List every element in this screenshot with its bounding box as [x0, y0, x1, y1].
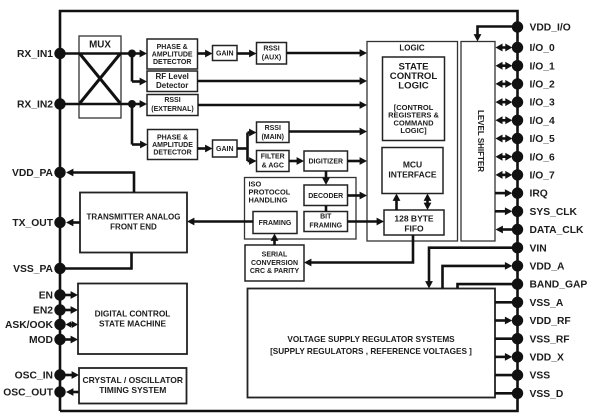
svg-text:OSC_OUT: OSC_OUT: [3, 388, 53, 399]
svg-text:INTERFACE: INTERFACE: [388, 170, 437, 180]
svg-text:DETECTOR: DETECTOR: [153, 150, 191, 157]
svg-text:I/O_6: I/O_6: [530, 152, 555, 163]
svg-text:[SUPPLY REGULATORS , REFERENC: [SUPPLY REGULATORS , REFERENCE VOLTAGES …: [270, 347, 472, 356]
svg-text:IRQ: IRQ: [530, 189, 548, 200]
svg-text:BIT: BIT: [320, 214, 332, 221]
svg-text:DECODER: DECODER: [308, 193, 343, 200]
svg-text:OSC_IN: OSC_IN: [15, 371, 53, 382]
svg-text:(AUX): (AUX): [262, 55, 281, 62]
svg-text:DETECTOR: DETECTOR: [153, 59, 191, 66]
svg-text:AMPLITUDE: AMPLITUDE: [152, 142, 193, 149]
svg-text:FRAMING: FRAMING: [309, 223, 342, 230]
svg-text:CRYSTAL / OSCILLATOR: CRYSTAL / OSCILLATOR: [82, 375, 183, 385]
svg-text:EN: EN: [39, 291, 53, 302]
svg-text:I/O_0: I/O_0: [530, 43, 555, 54]
svg-text:RSSI: RSSI: [164, 97, 180, 104]
svg-text:& AGC: & AGC: [262, 163, 284, 170]
svg-text:Detector: Detector: [156, 81, 188, 90]
svg-text:LOGIC: LOGIC: [399, 44, 425, 53]
svg-text:RX_IN1: RX_IN1: [17, 49, 53, 60]
svg-text:RX_IN2: RX_IN2: [17, 100, 53, 111]
svg-text:GAIN: GAIN: [216, 146, 234, 153]
svg-text:VSS_A: VSS_A: [530, 298, 564, 309]
svg-text:EN2: EN2: [33, 306, 53, 317]
svg-text:(MAIN): (MAIN): [261, 134, 284, 141]
svg-text:VDD_A: VDD_A: [530, 262, 565, 273]
svg-text:I/O_3: I/O_3: [530, 98, 555, 109]
svg-text:VOLTAGE SUPPLY REGULATOR SYSTE: VOLTAGE SUPPLY REGULATOR SYSTEMS: [287, 335, 455, 344]
svg-text:SERIAL: SERIAL: [262, 252, 288, 259]
svg-text:TX_OUT: TX_OUT: [12, 218, 53, 229]
svg-text:LOGIC: LOGIC: [398, 81, 428, 92]
svg-text:CONVERSION: CONVERSION: [251, 260, 298, 267]
svg-text:VDD_I/O: VDD_I/O: [530, 23, 571, 34]
svg-text:MOD: MOD: [29, 335, 53, 346]
svg-text:TIMING SYSTEM: TIMING SYSTEM: [99, 385, 166, 395]
svg-text:LOGIC]: LOGIC]: [400, 126, 427, 135]
svg-text:MCU: MCU: [403, 160, 422, 170]
svg-text:RSSI: RSSI: [263, 46, 279, 53]
svg-text:STATE MACHINE: STATE MACHINE: [99, 319, 166, 329]
svg-text:GAIN: GAIN: [216, 51, 234, 58]
svg-text:VDD_PA: VDD_PA: [12, 168, 54, 179]
svg-text:RSSI: RSSI: [265, 125, 281, 132]
svg-text:FILTER: FILTER: [261, 154, 285, 161]
svg-text:DIGITIZER: DIGITIZER: [308, 159, 343, 166]
svg-text:HANDLING: HANDLING: [249, 196, 288, 205]
svg-text:I/O_2: I/O_2: [530, 80, 555, 91]
svg-text:AMPLITUDE: AMPLITUDE: [152, 52, 193, 59]
svg-text:LEVEL SHIFTER: LEVEL SHIFTER: [476, 110, 485, 172]
svg-text:I/O_5: I/O_5: [530, 134, 555, 145]
svg-text:(EXTERNAL): (EXTERNAL): [151, 106, 193, 113]
svg-text:RF Level: RF Level: [156, 72, 189, 81]
svg-text:128 BYTE: 128 BYTE: [394, 213, 434, 223]
svg-text:I/O_7: I/O_7: [530, 171, 555, 182]
svg-text:VIN: VIN: [530, 243, 547, 254]
svg-text:VDD_X: VDD_X: [530, 353, 564, 364]
svg-text:SYS_CLK: SYS_CLK: [530, 207, 578, 218]
svg-text:I/O_4: I/O_4: [530, 116, 555, 127]
svg-text:VSS_PA: VSS_PA: [13, 264, 53, 275]
svg-text:VSS: VSS: [530, 371, 551, 382]
svg-text:BAND_GAP: BAND_GAP: [530, 280, 588, 291]
svg-text:FIFO: FIFO: [404, 223, 424, 233]
svg-text:I/O_1: I/O_1: [530, 61, 555, 72]
svg-text:VSS_RF: VSS_RF: [530, 334, 570, 345]
svg-text:VDD_RF: VDD_RF: [530, 316, 571, 327]
svg-text:DATA_CLK: DATA_CLK: [530, 225, 585, 236]
svg-text:FRAMING: FRAMING: [259, 220, 292, 227]
svg-text:ASK/OOK: ASK/OOK: [5, 320, 54, 331]
svg-text:PHASE &: PHASE &: [157, 44, 188, 51]
svg-text:MUX: MUX: [89, 40, 111, 51]
svg-text:CRC & PARITY: CRC & PARITY: [250, 268, 300, 275]
svg-text:FRONT END: FRONT END: [110, 223, 157, 232]
svg-text:VSS_D: VSS_D: [530, 389, 564, 400]
svg-text:PHASE &: PHASE &: [157, 135, 188, 142]
svg-text:TRANSMITTER ANALOG: TRANSMITTER ANALOG: [87, 213, 181, 222]
svg-text:DIGITAL CONTROL: DIGITAL CONTROL: [95, 309, 171, 319]
